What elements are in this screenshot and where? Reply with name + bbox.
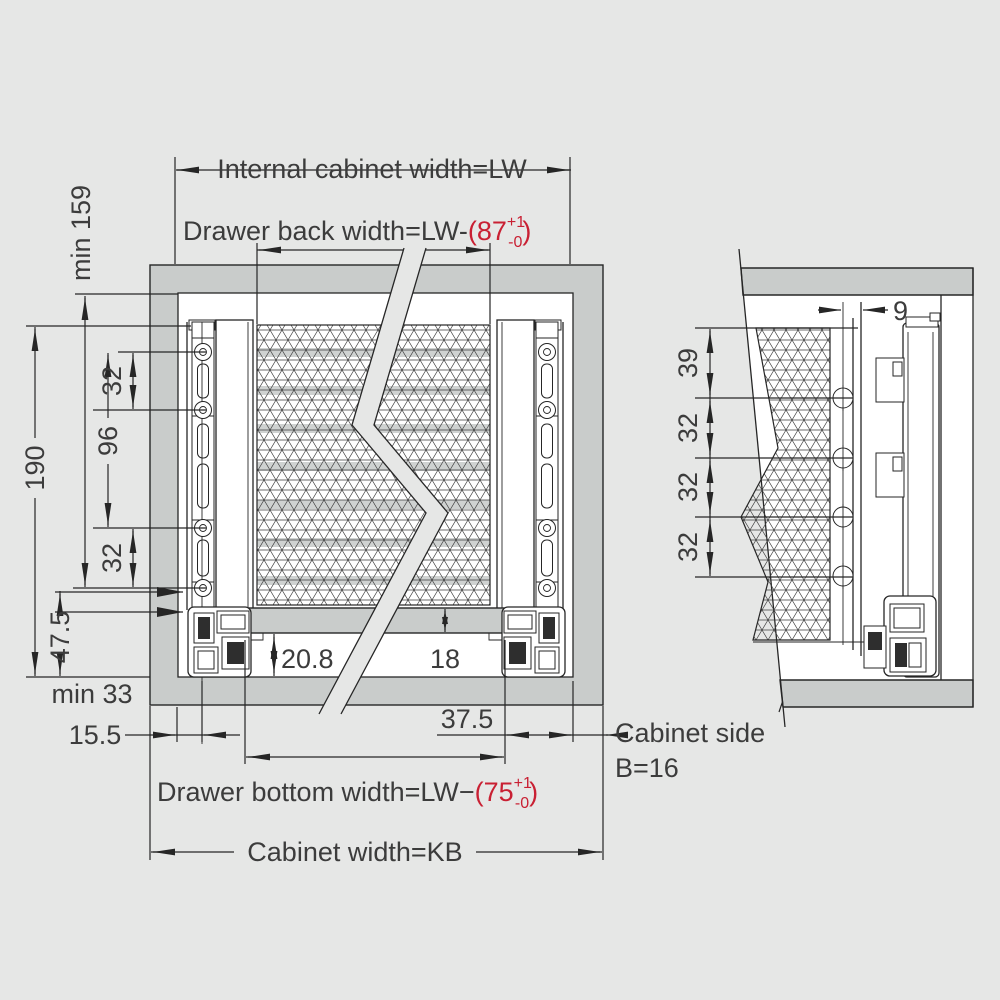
- rail-slot: [542, 424, 553, 458]
- front-view: [150, 265, 603, 744]
- rail-slot: [542, 464, 553, 508]
- label-cabinet-side: Cabinet side: [615, 718, 765, 748]
- drawer-installation-diagram: min 159 190 32 96 32 47.5 min 33 20.8 18…: [0, 0, 1000, 1000]
- dim-37-5: 37.5: [441, 704, 494, 734]
- rail-slot: [542, 364, 553, 398]
- dim-96: 96: [93, 426, 123, 456]
- rail-slot: [198, 364, 209, 398]
- dim-32-s3: 32: [673, 532, 703, 562]
- rail-slot: [198, 464, 209, 508]
- dim-20-8: 20.8: [281, 644, 334, 674]
- side-view: [739, 249, 973, 727]
- rail-slot: [198, 540, 209, 576]
- dim-47-5: 47.5: [45, 611, 75, 664]
- dim-190: 190: [20, 445, 50, 490]
- label-drawer-back-width: Drawer back width=LW-(87+1-0): [183, 214, 531, 251]
- right-drawer-side-panel: [497, 320, 534, 610]
- dim-18: 18: [430, 644, 460, 674]
- rail-slot: [542, 540, 553, 576]
- cabinet-top-band: [741, 268, 973, 295]
- dim-32-bottom: 32: [97, 543, 127, 573]
- dim-9: 9: [893, 296, 908, 326]
- dim-32-top: 32: [97, 366, 127, 396]
- dim-min-159: min 159: [66, 185, 96, 281]
- dim-min-33: min 33: [51, 679, 132, 709]
- label-b16: B=16: [615, 753, 679, 783]
- dim-39: 39: [673, 348, 703, 378]
- dim-32-s2: 32: [673, 472, 703, 502]
- right-locking-device: [502, 607, 565, 677]
- rail-slot: [198, 424, 209, 458]
- dim-32-s1: 32: [673, 413, 703, 443]
- label-internal-cabinet-width: Internal cabinet width=LW: [217, 154, 527, 184]
- dim-15-5: 15.5: [69, 720, 122, 750]
- cabinet-bottom-band: [780, 680, 973, 707]
- left-drawer-side-panel: [216, 320, 253, 610]
- technical-drawing-page: min 159 190 32 96 32 47.5 min 33 20.8 18…: [0, 0, 1000, 1000]
- top-labels: Internal cabinet width=LW Drawer back wi…: [183, 154, 531, 251]
- label-drawer-bottom-width: Drawer bottom width=LW−(75+1-0): [157, 775, 538, 812]
- label-cabinet-width: Cabinet width=KB: [247, 837, 462, 867]
- left-locking-device: [188, 607, 251, 677]
